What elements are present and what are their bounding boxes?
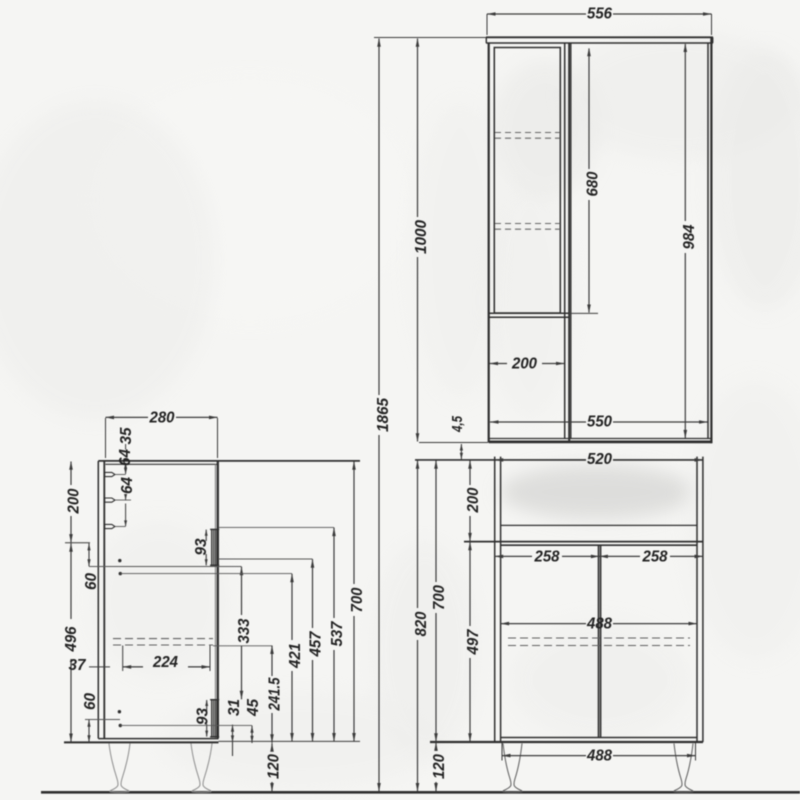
svg-text:120: 120 xyxy=(266,754,283,779)
svg-text:31: 31 xyxy=(226,699,243,716)
svg-text:64: 64 xyxy=(119,477,136,494)
svg-text:224: 224 xyxy=(152,654,178,671)
svg-text:45: 45 xyxy=(245,698,262,717)
svg-text:60: 60 xyxy=(82,693,99,710)
svg-text:64: 64 xyxy=(117,449,134,466)
svg-text:37: 37 xyxy=(69,657,87,674)
svg-text:457: 457 xyxy=(308,630,325,657)
svg-text:537: 537 xyxy=(329,620,346,646)
svg-text:700: 700 xyxy=(431,585,448,610)
svg-text:120: 120 xyxy=(431,754,448,779)
svg-text:4,5: 4,5 xyxy=(450,415,466,433)
svg-text:93: 93 xyxy=(194,708,211,725)
svg-text:1865: 1865 xyxy=(375,397,392,432)
svg-text:421: 421 xyxy=(287,643,304,669)
svg-text:60: 60 xyxy=(83,573,100,590)
svg-text:680: 680 xyxy=(585,171,602,196)
svg-text:200: 200 xyxy=(66,488,83,514)
svg-text:241.5: 241.5 xyxy=(267,677,284,712)
svg-text:496: 496 xyxy=(63,626,80,652)
svg-text:820: 820 xyxy=(413,611,430,636)
svg-text:550: 550 xyxy=(587,414,612,431)
svg-text:556: 556 xyxy=(587,6,612,23)
svg-text:35: 35 xyxy=(118,426,135,444)
svg-text:488: 488 xyxy=(586,616,612,633)
svg-text:333: 333 xyxy=(236,618,253,643)
svg-text:520: 520 xyxy=(587,451,612,468)
svg-text:700: 700 xyxy=(349,587,366,612)
svg-text:280: 280 xyxy=(149,410,175,427)
svg-text:258: 258 xyxy=(534,549,560,566)
svg-text:1000: 1000 xyxy=(413,220,430,254)
svg-text:200: 200 xyxy=(465,487,482,513)
svg-text:488: 488 xyxy=(586,748,612,765)
svg-text:497: 497 xyxy=(465,628,482,655)
svg-text:200: 200 xyxy=(511,356,537,373)
svg-text:93: 93 xyxy=(193,538,210,555)
svg-text:984: 984 xyxy=(681,224,698,249)
svg-text:258: 258 xyxy=(642,549,668,566)
